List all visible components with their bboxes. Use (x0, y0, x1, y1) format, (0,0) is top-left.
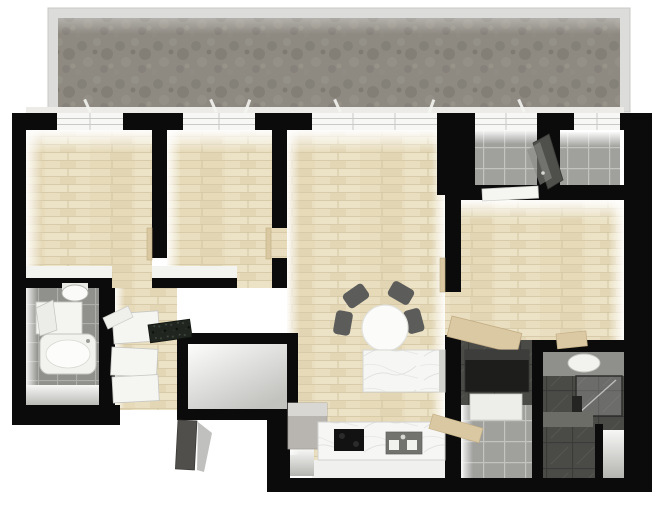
bedroom-1-floor (26, 130, 152, 288)
shelf (556, 331, 587, 349)
left-exterior-wall (12, 113, 26, 425)
door-handle (541, 171, 545, 175)
storage-left-wall (177, 333, 188, 420)
bedroom-3-left-wall (445, 195, 461, 292)
bedroom-2-door-leaf (147, 228, 152, 260)
bathroom-2-bench (543, 412, 593, 427)
floor-plan-stage (0, 0, 661, 512)
utility-left-wall (445, 335, 461, 478)
floor-plan-svg (0, 0, 661, 512)
top-wall-pier-3 (255, 113, 312, 130)
storage-bottom-wall (177, 409, 298, 420)
kitchen-floor-strip (312, 460, 445, 478)
bathtub-basin (46, 340, 90, 368)
bedroom-1-door-gap (112, 266, 152, 288)
entrance-door (175, 420, 212, 472)
window-1 (57, 113, 123, 130)
dark-appliance-top (465, 350, 529, 360)
tall-cabinet-top (288, 403, 327, 416)
bathroom-2-basin (568, 354, 600, 372)
appliance-front-panel (470, 394, 522, 420)
kitchen-island (363, 350, 445, 392)
balcony (48, 8, 630, 112)
bottom-exterior-wall (267, 478, 652, 492)
bed1-wall-cap (26, 266, 112, 279)
shower-fixture (572, 396, 582, 412)
bedroom-3-door-leaf (440, 258, 445, 292)
bed2-bottom-wall (152, 278, 237, 288)
window-3 (312, 113, 437, 130)
bedroom-2-floor (167, 130, 272, 288)
sink-faucet (401, 435, 406, 440)
bed2-living-divider-top (272, 130, 287, 228)
bathtub-faucet (86, 339, 90, 343)
toilet (62, 285, 88, 301)
bed2-wall-cap (152, 266, 237, 279)
bedroom-2-door-gap (237, 266, 272, 288)
top-wall-pier-4 (537, 113, 574, 130)
bathroom-1-niche (26, 385, 99, 407)
storage-top-wall (177, 333, 298, 344)
kitchen-island-edge (439, 350, 445, 392)
living-door-gap (272, 228, 287, 258)
entrance-door-leaf (175, 420, 197, 470)
bathroom-2-niche-wall (595, 424, 603, 478)
window-2 (183, 113, 255, 130)
sink-basin-right (407, 440, 417, 450)
bathroom-2-niche (603, 430, 624, 478)
bed2-living-divider-bottom (272, 258, 287, 288)
right-top-wall-chunk (437, 113, 475, 195)
balcony-shade (58, 18, 620, 34)
right-exterior-wall (624, 113, 652, 492)
storage-room-interior (188, 344, 287, 409)
window-5 (574, 113, 620, 130)
bedroom-3-floor (461, 200, 624, 340)
sink-basin-left (389, 440, 399, 450)
entry-white-door-leaf (482, 186, 539, 201)
living-door-leaf (266, 228, 271, 259)
top-wall-pier-2 (123, 113, 183, 130)
window-4 (475, 113, 537, 130)
kitchen-left-wall (267, 420, 290, 478)
bed1-bed2-divider (152, 130, 167, 258)
bathroom-2-left-wall (532, 340, 543, 478)
dining-table (362, 305, 408, 351)
cooktop (334, 429, 364, 451)
entrance-door-shadow (197, 422, 212, 472)
